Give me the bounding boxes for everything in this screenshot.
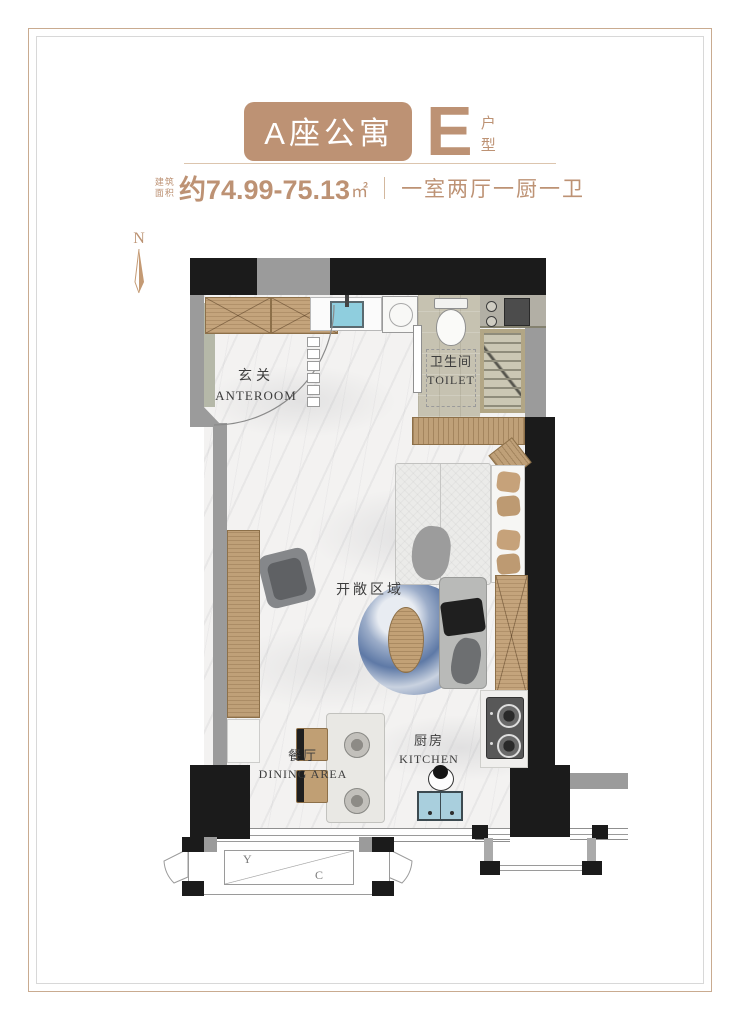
platform-pillar-gray	[204, 837, 217, 852]
platform-pillar	[182, 837, 204, 852]
stove-knob-dot	[490, 742, 493, 745]
area-label-line1: 建筑	[155, 177, 175, 187]
label-toilet: 卫生间 TOILET	[418, 351, 484, 388]
kitchen-sink	[417, 791, 463, 821]
stove-burner-2	[497, 734, 521, 758]
platform-label-right: C	[315, 868, 323, 883]
sink-drain-1	[428, 811, 432, 815]
utility-knob-2	[486, 316, 497, 327]
person-figure	[426, 765, 454, 791]
wall-top-right	[330, 258, 546, 295]
area-info-row: 建筑 面积 约74.99-75.13 ㎡ 一室两厅一厨一卫	[0, 168, 740, 207]
partition-block	[307, 349, 320, 359]
equipment-platform-left: Y C	[162, 835, 414, 905]
platform-pillar-gray	[359, 837, 372, 852]
title-divider-line	[184, 163, 556, 164]
compass-needle-icon	[131, 248, 147, 294]
area-label: 建筑 面积	[155, 177, 175, 198]
unit-type-suffix: 户 型	[481, 113, 496, 158]
unit-suffix-char2: 型	[481, 135, 496, 158]
compass: N	[126, 230, 152, 299]
balcony-right	[472, 825, 612, 880]
utility-knob-1	[486, 301, 497, 312]
bed-blanket	[409, 524, 453, 582]
partition-block	[307, 337, 320, 347]
floor-plan: 玄关 ANTEROOM 卫生间 TOILET 开敞区域 餐厅 DINING AR…	[150, 245, 630, 920]
stove-knob-dot	[490, 712, 493, 715]
building-badge: A座公寓	[244, 102, 412, 161]
utility-appliance	[504, 298, 530, 326]
platform-label-left: Y	[243, 852, 252, 867]
side-table	[388, 607, 424, 673]
toilet-tank	[434, 298, 468, 309]
balcony-railing	[500, 865, 582, 871]
bed	[395, 463, 491, 585]
label-open-area: 开敞区域	[318, 579, 422, 599]
label-anteroom-en: ANTEROOM	[202, 388, 310, 404]
layout-description: 一室两厅一厨一卫	[401, 173, 585, 203]
label-kitchen: 厨房 KITCHEN	[390, 730, 468, 767]
balcony-pillar	[582, 861, 602, 875]
label-anteroom: 玄关 ANTEROOM	[202, 365, 310, 404]
platform-pillar	[372, 837, 394, 852]
wall-left-lower	[213, 423, 227, 765]
label-toilet-en: TOILET	[418, 373, 484, 388]
basin-faucet	[345, 295, 349, 307]
area-value: 约74.99-75.13	[179, 168, 350, 207]
wall-top-left	[190, 258, 257, 295]
armchair-seat	[266, 556, 308, 601]
label-kitchen-zh: 厨房	[390, 730, 468, 749]
person-head	[433, 765, 448, 779]
shower-area	[480, 329, 525, 413]
pillow	[496, 471, 521, 494]
unit-suffix-char1: 户	[481, 113, 496, 136]
wardrobe	[495, 575, 528, 697]
pillow	[496, 529, 521, 551]
platform-pillar	[372, 881, 394, 896]
label-dining-en: DINING AREA	[248, 767, 358, 782]
stove-burner-1	[497, 704, 521, 728]
platform-pillar	[182, 881, 204, 896]
area-label-line2: 面积	[155, 188, 175, 198]
sink-divider	[440, 793, 441, 819]
wall-bottom-right-arm	[570, 773, 628, 789]
toilet-bowl	[436, 309, 466, 346]
washing-machine-door	[389, 303, 413, 327]
balcony-pillar	[592, 825, 608, 839]
gas-stove	[486, 697, 524, 759]
label-toilet-zh: 卫生间	[418, 351, 484, 370]
pillow	[496, 495, 521, 517]
platform-equipment-box: Y C	[224, 850, 354, 885]
title-block: A座公寓 E 户 型	[0, 96, 740, 166]
wall-bottom-left-block	[190, 765, 250, 839]
sink-drain-2	[450, 811, 454, 815]
sofa-cushion-dark	[440, 597, 486, 637]
sofa-cushion-gray	[448, 636, 484, 686]
label-anteroom-zh: 玄关	[202, 365, 310, 385]
pillow	[496, 553, 521, 575]
unit-type-letter: E	[426, 96, 473, 166]
bed-headboard	[491, 465, 525, 583]
compass-north-label: N	[126, 230, 152, 248]
table-plate-2	[344, 788, 370, 814]
sofa	[439, 577, 487, 689]
wall-right-main	[525, 417, 555, 765]
balcony-pillar	[472, 825, 488, 839]
label-dining-zh: 餐厅	[248, 745, 358, 764]
label-kitchen-en: KITCHEN	[390, 752, 468, 767]
area-unit: ㎡	[351, 177, 368, 202]
label-open-area-zh: 开敞区域	[318, 579, 422, 599]
balcony-pillar	[480, 861, 500, 875]
wall-top-middle	[257, 258, 330, 295]
sideboard	[227, 530, 260, 718]
label-dining: 餐厅 DINING AREA	[248, 745, 358, 782]
area-separator	[384, 177, 385, 199]
